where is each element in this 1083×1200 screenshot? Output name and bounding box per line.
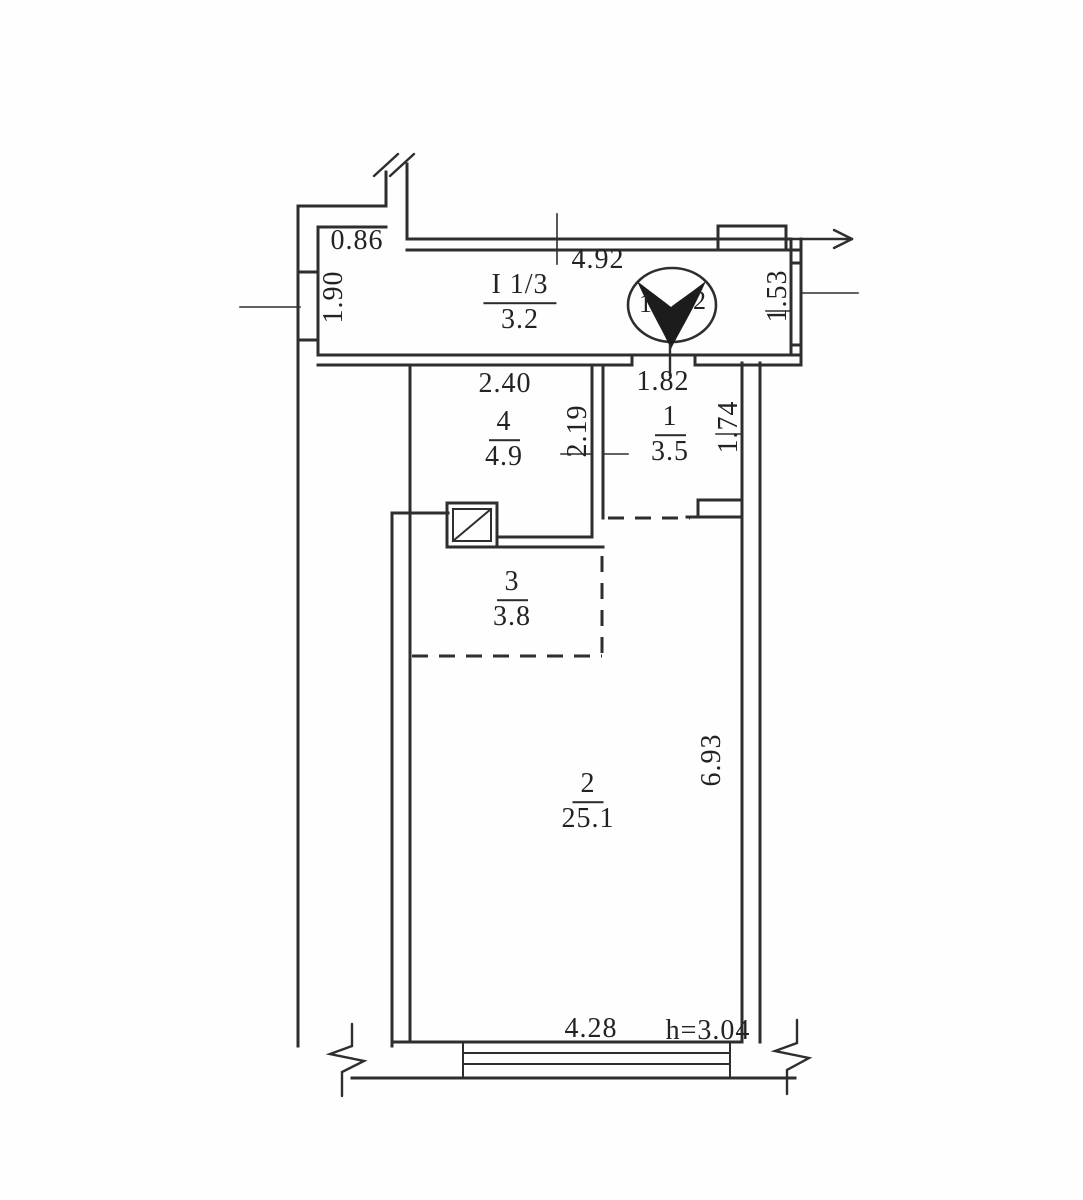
dim-bottom-window: 4.28 (565, 1015, 618, 1043)
room-2-label: 2 25.1 (562, 769, 615, 835)
room-4-area: 4.9 (485, 442, 523, 473)
dim-ceiling-height: h=3.04 (666, 1017, 751, 1045)
room-4-number: 4 (489, 407, 520, 441)
right-wall (742, 363, 760, 1042)
room-3-label: 3 3.8 (493, 567, 531, 633)
dim-right-window: 1.53 (764, 270, 792, 323)
vent-shaft-symbol (447, 503, 497, 547)
room-hall-label: I 1/3 3.2 (483, 270, 556, 336)
dim-room4-depth: 2.19 (564, 405, 592, 458)
corridor-bottom-wall (318, 355, 801, 365)
room-hall-area: 3.2 (483, 305, 556, 336)
room-3-number: 3 (497, 567, 528, 601)
dim-room1-depth: 1.74 (715, 401, 743, 454)
room-2-number: 2 (573, 769, 604, 803)
dim-room2-depth: 6.93 (698, 734, 726, 787)
room-hall-number: I 1/3 (483, 270, 556, 304)
north-badge-left-text: 1 (639, 291, 653, 317)
dim-left-window: 1.90 (320, 271, 348, 324)
divider-wall-room4-room1 (592, 365, 603, 537)
wall-break-icons (330, 154, 809, 1096)
room-2-area: 25.1 (562, 804, 615, 835)
north-arrow-icon (628, 268, 716, 376)
dim-niche-width: 0.86 (331, 227, 384, 255)
break-icon-bottom-right (775, 1020, 809, 1094)
room1-bottom-step-wall (687, 500, 742, 517)
break-icon-bottom-left (330, 1024, 364, 1096)
dimension-arrow-top-right (790, 230, 852, 248)
room-3-area: 3.8 (493, 602, 531, 633)
bottom-window-symbol (463, 1053, 730, 1064)
left-wall-lower (392, 365, 448, 1046)
dim-room4-width: 2.40 (479, 370, 532, 398)
north-badge-right-text: 2 (693, 288, 707, 314)
floor-plan-drawing (0, 0, 1083, 1200)
bottom-wall (352, 1042, 795, 1078)
room-1-number: 1 (655, 402, 686, 436)
dim-room1-width: 1.82 (637, 368, 690, 396)
dim-top-width: 4.92 (572, 246, 625, 274)
room-4-label: 4 4.9 (485, 407, 523, 473)
outer-left-wall (298, 206, 386, 1046)
floor-plan-page: 0.86 1.90 4.92 1.53 I 1/3 3.2 1 2 2.40 1… (0, 0, 1083, 1200)
room-1-area: 3.5 (651, 437, 689, 468)
room-1-label: 1 3.5 (651, 402, 689, 468)
